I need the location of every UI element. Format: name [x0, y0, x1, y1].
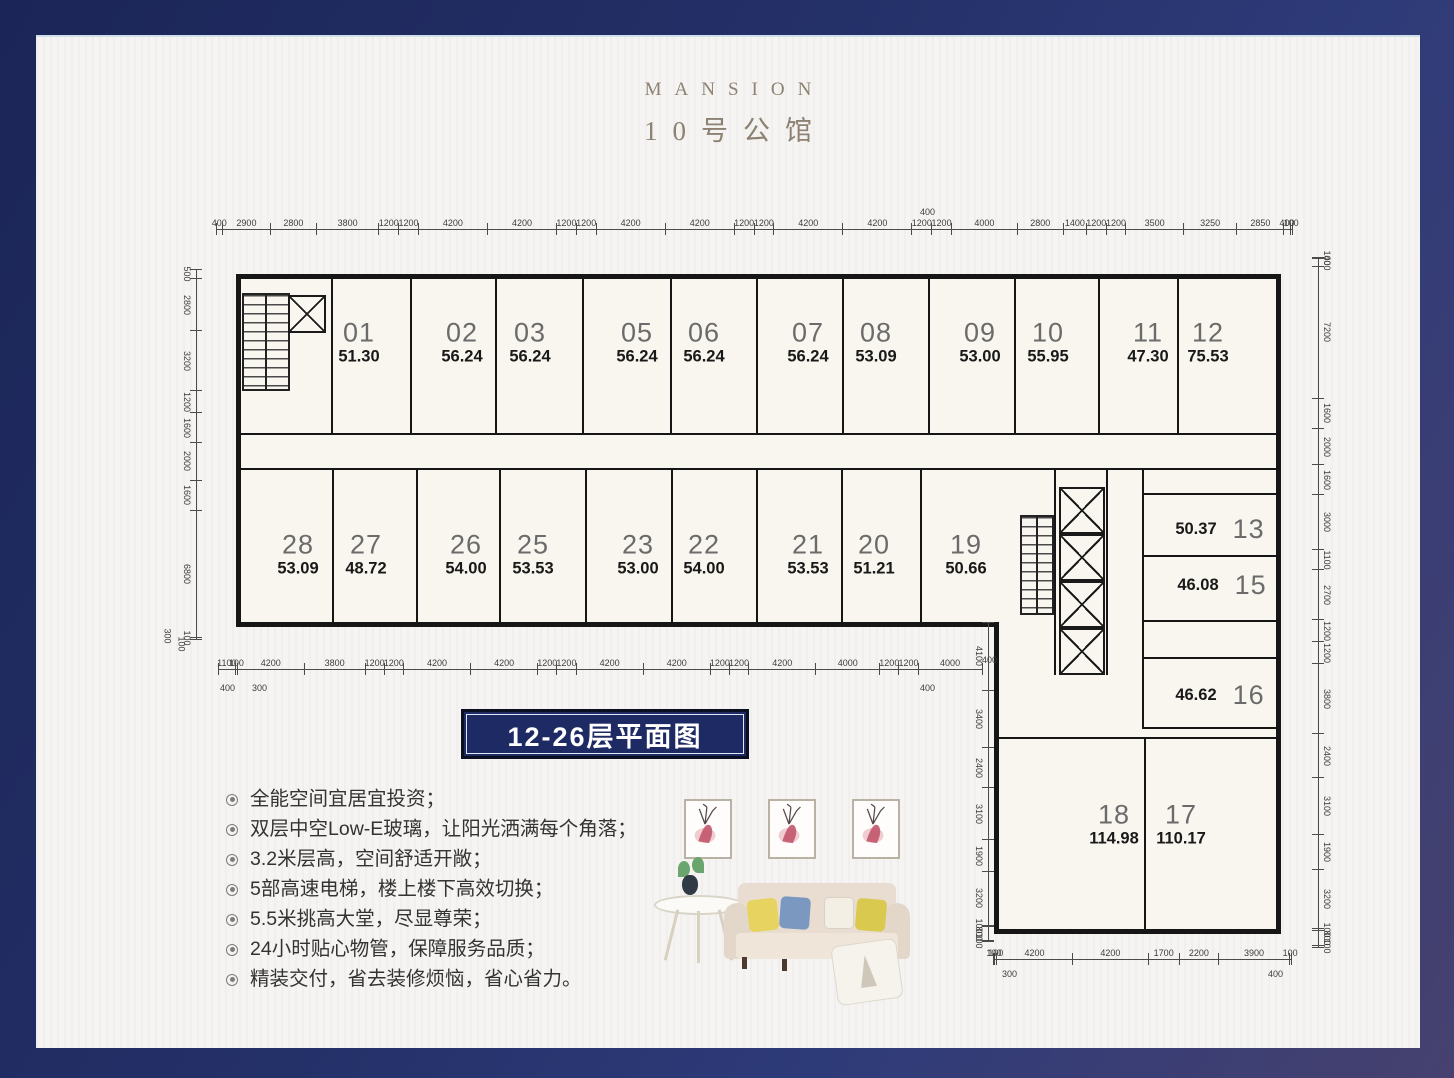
feature-text: 3.2米层高，空间舒适开敞；	[250, 849, 492, 870]
floor-fill	[996, 622, 1281, 934]
dimension-line-wing-bottom: 10010042004200170022003900100	[993, 947, 1291, 967]
bullet-icon	[226, 914, 238, 926]
unit-label-19: 1950.66	[945, 531, 986, 580]
unit-label-26: 2654.00	[445, 531, 486, 580]
feature-text: 24小时贴心物管，保障服务品质；	[250, 939, 545, 960]
floor-pillow-icon	[830, 938, 904, 1007]
wall	[331, 278, 333, 433]
wall	[1142, 470, 1144, 729]
unit-label-06: 0656.24	[683, 319, 724, 368]
unit-label-01: 0151.30	[338, 319, 379, 368]
floor-label: 12-26层平面图	[507, 715, 702, 754]
wall	[1142, 555, 1278, 557]
feature-item-5: 5.5米挑高大堂，尽显尊荣；	[226, 909, 637, 930]
dimension-annotation: 300	[1002, 969, 1017, 979]
elevator-icon	[1059, 581, 1105, 628]
unit-label-02: 0256.24	[441, 319, 482, 368]
bullet-icon	[226, 944, 238, 956]
dimension-line-right: 1004007200160020001600300011002700120012…	[1312, 257, 1332, 947]
dimension-line-left: 5002800320012001600200016006800100	[182, 269, 202, 639]
bullet-icon	[226, 794, 238, 806]
wall	[1014, 278, 1016, 433]
wall	[240, 433, 1276, 435]
wall	[994, 622, 999, 934]
unit-label-16: 1646.62	[1175, 681, 1264, 709]
pillow-icon	[779, 896, 811, 930]
table-leg-icon	[697, 911, 700, 963]
unit-label-22: 2254.00	[683, 531, 724, 580]
deer-art-icon	[768, 799, 816, 859]
dimension-annotation: 400	[920, 207, 935, 217]
wall	[1142, 657, 1278, 659]
unit-label-23: 2353.00	[617, 531, 658, 580]
elevator-icon	[1059, 487, 1105, 534]
pillow-icon	[824, 897, 854, 929]
features-list: 全能空间宜居宜投资；双层中空Low-E玻璃，让阳光洒满每个角落；3.2米层高，空…	[226, 789, 637, 990]
wall	[332, 470, 334, 622]
dimension-annotation: 100	[177, 636, 187, 651]
wall	[994, 929, 1281, 934]
wall	[841, 470, 843, 622]
wall	[416, 470, 418, 622]
unit-label-09: 0953.00	[959, 319, 1000, 368]
feature-text: 精装交付，省去装修烦恼，省心省力。	[250, 969, 582, 990]
wall	[240, 468, 1276, 470]
wall	[1142, 620, 1278, 622]
dimension-line-mid-vertical: 410034002400310019003200100800100	[974, 622, 994, 942]
unit-label-03: 0356.24	[509, 319, 550, 368]
poster: MANSION 10号公馆	[0, 0, 1454, 1078]
wall	[499, 470, 501, 622]
unit-label-18: 18114.98	[1089, 801, 1139, 850]
bullet-icon	[226, 854, 238, 866]
plant-icon	[692, 857, 704, 873]
feature-item-3: 3.2米层高，空间舒适开敞；	[226, 849, 637, 870]
sofa-leg-icon	[742, 957, 747, 969]
deer-art-icon	[852, 799, 900, 859]
floor-fill	[236, 274, 1281, 627]
wall	[1144, 739, 1146, 929]
feature-text: 5部高速电梯，楼上楼下高效切换；	[250, 879, 553, 900]
unit-label-05: 0556.24	[616, 319, 657, 368]
unit-label-13: 1350.37	[1175, 515, 1264, 543]
unit-label-11: 1147.30	[1127, 319, 1168, 368]
dimension-annotation: 300	[163, 628, 173, 643]
unit-label-28: 2853.09	[277, 531, 318, 580]
wall	[1142, 727, 1278, 729]
stairs-icon	[242, 293, 290, 391]
feature-text: 5.5米挑高大堂，尽显尊荣；	[250, 909, 492, 930]
deer-art-icon	[684, 799, 732, 859]
dimension-annotation: 400	[920, 683, 935, 693]
unit-label-17: 17110.17	[1156, 801, 1206, 850]
feature-item-7: 精装交付，省去装修烦恼，省心省力。	[226, 969, 637, 990]
elevator-icon	[1059, 628, 1105, 675]
wall	[1098, 278, 1100, 433]
unit-label-07: 0756.24	[787, 319, 828, 368]
wall	[582, 278, 584, 433]
wall	[928, 278, 930, 433]
wall	[756, 278, 758, 433]
wall	[1106, 470, 1108, 675]
wall	[1177, 278, 1179, 433]
unit-label-27: 2748.72	[345, 531, 386, 580]
wall	[236, 622, 998, 627]
pillow-icon	[746, 898, 779, 933]
elevator-icon	[1059, 534, 1105, 581]
paper-background: MANSION 10号公馆	[36, 35, 1420, 1048]
feature-text: 双层中空Low-E玻璃，让阳光洒满每个角落；	[250, 819, 637, 840]
wall	[756, 470, 758, 622]
unit-label-10: 1055.95	[1027, 319, 1068, 368]
dimension-annotation: 300	[252, 683, 267, 693]
dimension-line-bottom: 1100100420038001200120042004200120012004…	[218, 657, 982, 677]
wall	[671, 470, 673, 622]
wall	[1142, 493, 1278, 495]
feature-item-2: 双层中空Low-E玻璃，让阳光洒满每个角落；	[226, 819, 637, 840]
wall	[1054, 470, 1056, 675]
elevator-icon	[288, 295, 326, 333]
wall	[585, 470, 587, 622]
pillow-icon	[855, 898, 888, 932]
bullet-icon	[226, 884, 238, 896]
dimension-line-top: 4002900280038001200120042004200120012004…	[216, 217, 1292, 237]
unit-label-08: 0853.09	[855, 319, 896, 368]
dimension-annotation: 400	[220, 683, 235, 693]
unit-label-12: 1275.53	[1187, 319, 1228, 368]
wall	[495, 278, 497, 433]
wall	[1276, 274, 1281, 934]
floor-label-badge: 12-26层平面图	[461, 709, 749, 759]
stairs-icon	[1020, 515, 1054, 615]
wall	[920, 470, 922, 622]
feature-item-4: 5部高速电梯，楼上楼下高效切换；	[226, 879, 637, 900]
sofa-leg-icon	[782, 959, 787, 971]
feature-text: 全能空间宜居宜投资；	[250, 789, 445, 810]
wall	[236, 274, 1281, 279]
unit-label-25: 2553.53	[512, 531, 553, 580]
feature-item-6: 24小时贴心物管，保障服务品质；	[226, 939, 637, 960]
unit-label-15: 1546.08	[1177, 571, 1266, 599]
wall	[998, 737, 1278, 739]
bullet-icon	[226, 974, 238, 986]
vase-icon	[682, 875, 698, 895]
wall	[670, 278, 672, 433]
bullet-icon	[226, 824, 238, 836]
wall	[842, 278, 844, 433]
dimension-annotation: 400	[982, 655, 997, 665]
feature-item-1: 全能空间宜居宜投资；	[226, 789, 637, 810]
wall	[236, 274, 241, 627]
unit-label-20: 2051.21	[853, 531, 894, 580]
wall	[410, 278, 412, 433]
unit-label-21: 2153.53	[787, 531, 828, 580]
dimension-annotation: 400	[1268, 969, 1283, 979]
